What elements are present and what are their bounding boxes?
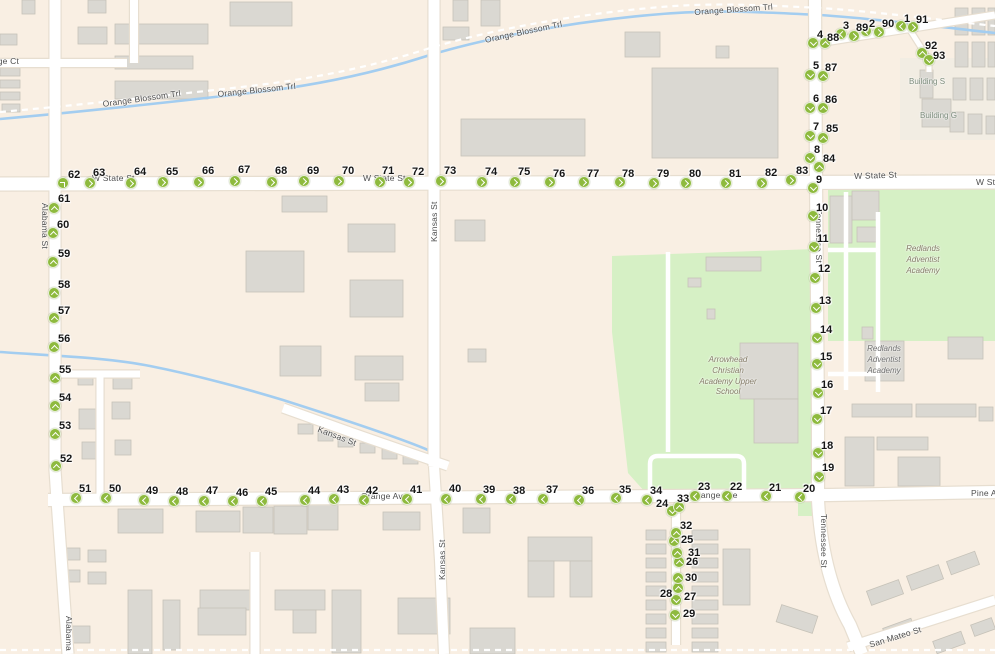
stop-number-label: 38 (513, 486, 525, 497)
stop-number-label: 25 (681, 535, 693, 546)
direction-arrow-icon (158, 178, 165, 185)
direction-arrow-icon (674, 575, 681, 582)
stop-number-label: 66 (202, 166, 214, 177)
direction-arrow-icon (302, 496, 309, 503)
stop-number-label: 82 (765, 168, 777, 179)
direction-arrow-icon (670, 538, 677, 545)
stop-marker-64[interactable] (125, 177, 137, 189)
direction-arrow-icon (675, 504, 682, 511)
stop-number-label: 32 (680, 521, 692, 532)
stop-number-label: 36 (582, 486, 594, 497)
stop-number-label: 31 (688, 548, 700, 559)
stop-number-label: 6 (813, 94, 819, 105)
direction-arrow-icon (331, 495, 338, 502)
stop-number-label: 81 (729, 169, 741, 180)
direction-arrow-icon (50, 290, 57, 297)
direction-arrow-icon (681, 179, 688, 186)
direction-arrow-icon (299, 177, 306, 184)
stop-number-label: 8 (814, 145, 820, 156)
direction-arrow-icon (171, 497, 178, 504)
stop-number-label: 61 (58, 194, 70, 205)
stop-number-label: 12 (818, 264, 830, 275)
stop-number-label: 3 (843, 21, 849, 32)
stop-number-label: 68 (275, 166, 287, 177)
direction-arrow-icon (874, 28, 881, 35)
direction-arrow-icon (644, 496, 651, 503)
direction-arrow-icon (404, 495, 411, 502)
stop-number-label: 84 (823, 154, 835, 165)
stop-number-label: 58 (58, 280, 70, 291)
direction-arrow-icon (673, 550, 680, 557)
stop-marker-66[interactable] (193, 176, 205, 188)
street-label: W State St (976, 177, 995, 187)
stop-number-label: 10 (816, 203, 828, 214)
stop-number-label: 72 (412, 167, 424, 178)
stop-number-label: 87 (825, 63, 837, 74)
direction-arrow-icon (141, 496, 148, 503)
stop-number-label: 4 (817, 30, 823, 41)
direction-arrow-icon (478, 495, 485, 502)
stop-number-label: 76 (553, 169, 565, 180)
direction-arrow-icon (925, 55, 932, 62)
direction-arrow-icon (201, 497, 208, 504)
stop-number-label: 21 (769, 483, 781, 494)
stop-number-label: 39 (483, 485, 495, 496)
direction-arrow-icon (819, 105, 826, 112)
direction-arrow-icon (51, 375, 58, 382)
stop-number-label: 19 (822, 463, 834, 474)
poi-label: Building S (909, 77, 969, 88)
poi-label: Arrowhead Christian Academy Upper School (688, 355, 768, 398)
stop-number-label: 46 (236, 488, 248, 499)
stop-number-label: 9 (816, 175, 822, 186)
direction-arrow-icon (443, 495, 450, 502)
street-label: Tennessee St (819, 514, 829, 568)
stop-number-label: 16 (821, 380, 833, 391)
stop-number-label: 54 (59, 393, 71, 404)
stop-number-label: 37 (546, 485, 558, 496)
stop-number-label: 29 (683, 609, 695, 620)
stop-number-label: 18 (821, 441, 833, 452)
stop-number-label: 52 (60, 454, 72, 465)
stop-number-label: 90 (882, 19, 894, 30)
stop-number-label: 33 (677, 494, 689, 505)
direction-arrow-icon (436, 177, 443, 184)
direction-arrow-icon (103, 494, 110, 501)
stop-number-label: 7 (813, 122, 819, 133)
stop-number-label: 78 (622, 169, 634, 180)
stop-number-label: 69 (307, 166, 319, 177)
direction-arrow-icon (194, 178, 201, 185)
direction-arrow-icon (510, 178, 517, 185)
poi-label: Redlands Adventist Academy (858, 344, 910, 376)
stop-number-label: 77 (587, 169, 599, 180)
stop-number-label: 23 (698, 482, 710, 493)
stop-number-label: 17 (820, 406, 832, 417)
direction-arrow-icon (757, 179, 764, 186)
stop-number-label: 71 (382, 166, 394, 177)
stop-marker-67[interactable] (229, 175, 241, 187)
map-canvas[interactable]: Orange CtOrange Blossom TrlOrange Blosso… (0, 0, 995, 654)
direction-arrow-icon (49, 259, 56, 266)
stop-number-label: 44 (308, 486, 320, 497)
stop-number-label: 45 (265, 487, 277, 498)
stop-marker-30[interactable] (672, 572, 684, 584)
direction-arrow-icon (815, 164, 822, 171)
stop-number-label: 27 (684, 592, 696, 603)
stop-number-label: 15 (820, 352, 832, 363)
direction-arrow-icon (477, 178, 484, 185)
direction-arrow-icon (73, 494, 80, 501)
direction-arrow-icon (721, 179, 728, 186)
direction-arrow-icon (692, 492, 699, 499)
stop-number-label: 55 (59, 365, 71, 376)
stop-number-label: 34 (650, 486, 662, 497)
stop-number-label: 65 (166, 167, 178, 178)
stop-number-label: 85 (826, 124, 838, 135)
direction-arrow-icon (579, 178, 586, 185)
stop-marker-31[interactable] (671, 547, 683, 559)
stop-number-label: 42 (366, 486, 378, 497)
stop-number-label: 62 (68, 170, 80, 181)
stop-number-label: 89 (856, 23, 868, 34)
poi-label: Building G (920, 111, 980, 122)
direction-arrow-icon (52, 463, 59, 470)
stop-number-label: 5 (813, 61, 819, 72)
street-label: W State St (854, 170, 897, 181)
direction-arrow-icon (49, 230, 56, 237)
stop-number-label: 51 (79, 484, 91, 495)
stop-number-label: 43 (337, 485, 349, 496)
stop-number-label: 88 (827, 33, 839, 44)
direction-arrow-icon (674, 585, 681, 592)
direction-arrow-icon (267, 178, 274, 185)
direction-arrow-icon (230, 177, 237, 184)
direction-arrow-icon (404, 178, 411, 185)
stop-number-label: 86 (825, 95, 837, 106)
direction-arrow-icon (334, 177, 341, 184)
direction-arrow-icon (819, 135, 826, 142)
direction-arrow-icon (50, 315, 57, 322)
direction-arrow-icon (649, 179, 656, 186)
stop-number-label: 70 (342, 166, 354, 177)
stop-marker-29[interactable] (669, 609, 681, 621)
poi-label: Redlands Adventist Academy (888, 244, 958, 276)
direction-arrow-icon (51, 431, 58, 438)
stop-number-label: 91 (916, 15, 928, 26)
stop-number-label: 48 (176, 487, 188, 498)
stop-number-label: 28 (660, 589, 672, 600)
direction-arrow-icon (50, 205, 57, 212)
stop-number-label: 49 (146, 486, 158, 497)
stop-number-label: 50 (109, 484, 121, 495)
stop-number-label: 63 (93, 168, 105, 179)
stop-number-label: 40 (449, 484, 461, 495)
stop-number-label: 30 (685, 573, 697, 584)
stop-number-label: 1 (904, 14, 910, 25)
direction-arrow-icon (806, 153, 813, 160)
stop-number-label: 47 (206, 486, 218, 497)
direction-arrow-icon (259, 497, 266, 504)
stop-number-label: 14 (820, 325, 832, 336)
stop-number-label: 20 (803, 484, 815, 495)
stop-number-label: 11 (817, 234, 829, 245)
stop-number-label: 22 (730, 482, 742, 493)
direction-arrow-icon (672, 595, 679, 602)
stop-number-label: 80 (689, 169, 701, 180)
stop-number-label: 41 (410, 485, 422, 496)
street-label: Pine Ave (971, 488, 995, 498)
stop-number-label: 2 (869, 19, 875, 30)
street-label: Orange Ct (0, 56, 19, 66)
direction-arrow-icon (786, 176, 793, 183)
stop-marker-71[interactable] (374, 176, 386, 188)
direction-arrow-icon (50, 344, 57, 351)
direction-arrow-icon (809, 38, 816, 45)
street-label: Kansas St (429, 201, 439, 242)
direction-arrow-icon (60, 182, 65, 187)
direction-arrow-icon (671, 610, 678, 617)
stop-number-label: 73 (444, 166, 456, 177)
direction-arrow-icon (819, 73, 826, 80)
street-label: Kansas St (437, 539, 447, 580)
stop-marker-68[interactable] (266, 176, 278, 188)
direction-arrow-icon (85, 179, 92, 186)
direction-arrow-icon (540, 495, 547, 502)
stop-number-label: 74 (485, 167, 497, 178)
direction-arrow-icon (361, 496, 368, 503)
stop-number-label: 57 (58, 306, 70, 317)
direction-arrow-icon (545, 178, 552, 185)
stop-number-label: 53 (59, 421, 71, 432)
direction-arrow-icon (576, 496, 583, 503)
stop-number-label: 59 (58, 249, 70, 260)
stop-number-label: 67 (238, 165, 250, 176)
direction-arrow-icon (724, 492, 731, 499)
stop-number-label: 75 (518, 167, 530, 178)
stop-number-label: 13 (819, 296, 831, 307)
stop-number-label: 79 (657, 169, 669, 180)
direction-arrow-icon (675, 559, 682, 566)
stop-number-label: 60 (57, 220, 69, 231)
stop-number-label: 64 (134, 167, 146, 178)
direction-arrow-icon (51, 403, 58, 410)
stop-number-label: 35 (619, 485, 631, 496)
street-label: Alabama St (64, 616, 74, 654)
stop-number-label: 56 (58, 334, 70, 345)
direction-arrow-icon (375, 178, 382, 185)
stop-number-label: 24 (656, 499, 668, 510)
direction-arrow-icon (126, 179, 133, 186)
stop-number-label: 83 (796, 166, 808, 177)
direction-arrow-icon (672, 530, 679, 537)
stop-number-label: 93 (933, 51, 945, 62)
